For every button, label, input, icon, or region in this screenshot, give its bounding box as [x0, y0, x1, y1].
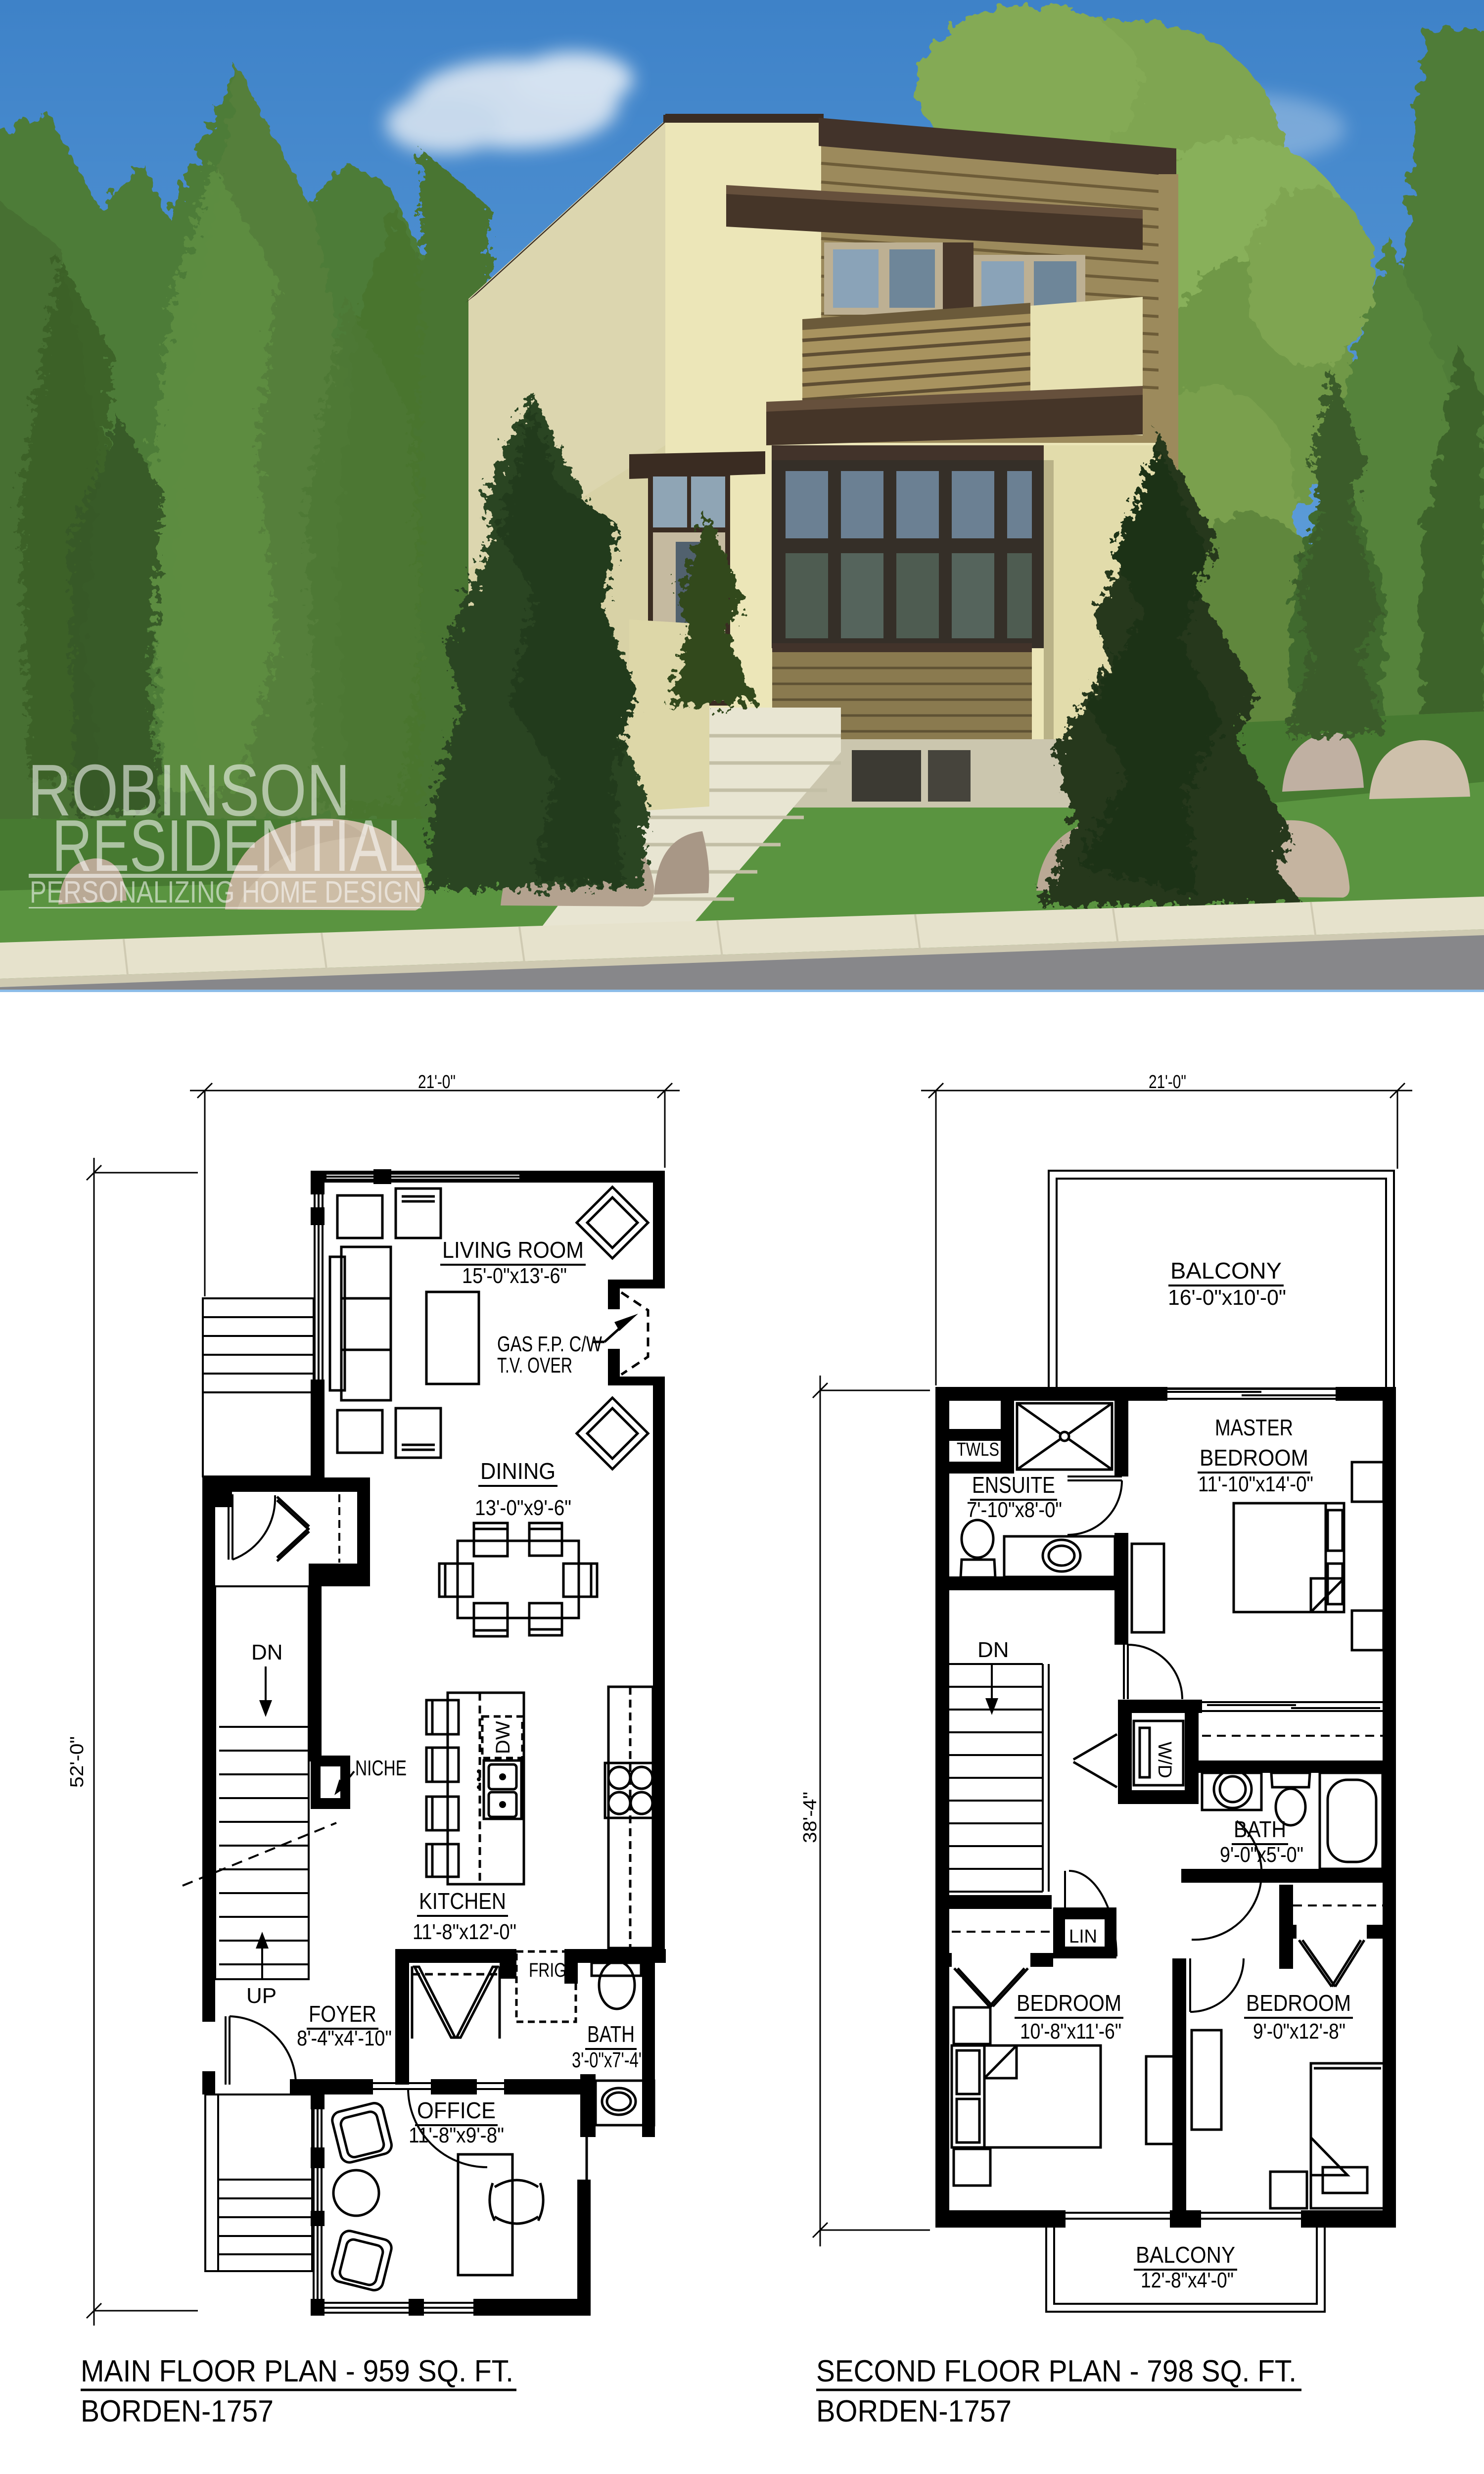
svg-text:GAS F.P. C/W: GAS F.P. C/W	[497, 1332, 602, 1356]
svg-text:NICHE: NICHE	[355, 1756, 407, 1780]
svg-text:DN: DN	[977, 1638, 1009, 1662]
svg-text:SECOND FLOOR PLAN - 798 SQ. FT: SECOND FLOOR PLAN - 798 SQ. FT.	[816, 2354, 1297, 2388]
svg-text:LIN: LIN	[1069, 1926, 1097, 1947]
svg-text:11'-10"x14'-0": 11'-10"x14'-0"	[1198, 1472, 1313, 1496]
svg-text:38'-4": 38'-4"	[800, 1792, 821, 1843]
svg-text:OFFICE: OFFICE	[417, 2097, 496, 2123]
svg-text:TWLS: TWLS	[957, 1439, 999, 1460]
svg-text:21'-0": 21'-0"	[418, 1072, 456, 1093]
svg-text:ENSUITE: ENSUITE	[972, 1472, 1055, 1498]
svg-text:DW: DW	[492, 1721, 514, 1754]
svg-text:9'-0"x12'-8": 9'-0"x12'-8"	[1253, 2019, 1345, 2044]
svg-text:21'-0": 21'-0"	[1149, 1072, 1186, 1093]
svg-text:10'-8"x11'-6": 10'-8"x11'-6"	[1020, 2019, 1121, 2044]
svg-text:BEDROOM: BEDROOM	[1246, 1990, 1351, 2016]
svg-text:DINING: DINING	[480, 1458, 556, 1484]
svg-text:LIVING ROOM: LIVING ROOM	[442, 1237, 584, 1263]
svg-text:11'-8"x12'-0": 11'-8"x12'-0"	[413, 1920, 516, 1944]
svg-text:8'-4"x4'-10": 8'-4"x4'-10"	[297, 2026, 392, 2050]
svg-text:12'-8"x4'-0": 12'-8"x4'-0"	[1141, 2268, 1234, 2292]
svg-text:KITCHEN: KITCHEN	[419, 1888, 506, 1914]
svg-text:52'-0": 52'-0"	[67, 1736, 88, 1788]
svg-text:FOYER: FOYER	[309, 2001, 376, 2027]
svg-text:BORDEN-1757: BORDEN-1757	[816, 2394, 1012, 2428]
svg-text:PERSONALIZING HOME DESIGN: PERSONALIZING HOME DESIGN	[30, 875, 421, 909]
svg-text:15'-0"x13'-6": 15'-0"x13'-6"	[462, 1264, 567, 1288]
svg-text:UP: UP	[246, 1984, 277, 2008]
svg-text:BORDEN-1757: BORDEN-1757	[81, 2394, 274, 2428]
svg-text:7'-10"x8'-0": 7'-10"x8'-0"	[967, 1498, 1062, 1522]
svg-text:11'-8"x9'-8": 11'-8"x9'-8"	[409, 2123, 504, 2147]
svg-text:16'-0"x10'-0": 16'-0"x10'-0"	[1168, 1285, 1286, 1310]
svg-text:MAIN FLOOR PLAN - 959 SQ. FT.: MAIN FLOOR PLAN - 959 SQ. FT.	[81, 2354, 513, 2388]
svg-text:BEDROOM: BEDROOM	[1200, 1445, 1308, 1471]
svg-text:BALCONY: BALCONY	[1170, 1258, 1282, 1284]
svg-text:BATH: BATH	[587, 2021, 635, 2047]
svg-text:13'-0"x9'-6": 13'-0"x9'-6"	[475, 1496, 571, 1520]
svg-text:BEDROOM: BEDROOM	[1017, 1990, 1121, 2016]
svg-text:T.V. OVER: T.V. OVER	[497, 1353, 572, 1378]
svg-text:W/D: W/D	[1154, 1742, 1175, 1778]
svg-text:DN: DN	[251, 1640, 283, 1665]
svg-text:BALCONY: BALCONY	[1136, 2242, 1235, 2268]
svg-text:FRIG: FRIG	[529, 1959, 566, 1981]
svg-text:MASTER: MASTER	[1215, 1415, 1293, 1440]
svg-text:3'-0"x7'-4': 3'-0"x7'-4'	[572, 2048, 642, 2072]
svg-text:BATH: BATH	[1234, 1816, 1286, 1842]
